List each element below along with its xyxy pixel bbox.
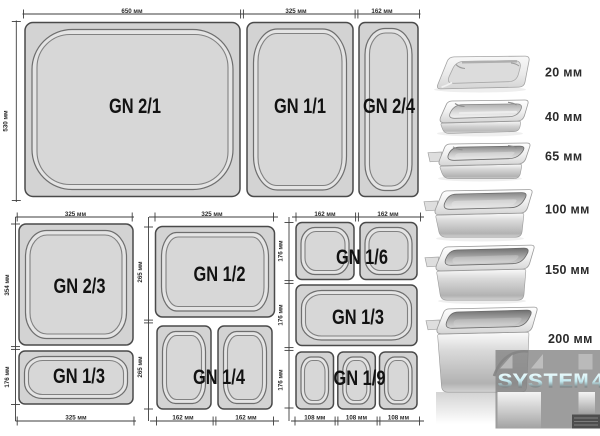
svg-text:40 мм: 40 мм	[545, 110, 582, 124]
svg-text:GN 2/3: GN 2/3	[54, 274, 106, 298]
svg-text:325 мм: 325 мм	[65, 415, 87, 422]
svg-text:GN 1/3: GN 1/3	[53, 364, 105, 388]
svg-text:GN 1/1: GN 1/1	[274, 94, 326, 118]
svg-text:GN 2/4: GN 2/4	[363, 94, 415, 118]
svg-text:GN 1/9: GN 1/9	[334, 366, 386, 390]
svg-text:200 мм: 200 мм	[548, 332, 593, 346]
svg-text:108 мм: 108 мм	[304, 415, 326, 422]
svg-text:176 мм: 176 мм	[278, 240, 285, 262]
svg-text:162 мм: 162 мм	[314, 211, 336, 218]
svg-text:GN 1/3: GN 1/3	[332, 305, 384, 329]
svg-text:650 мм: 650 мм	[121, 8, 143, 15]
svg-text:108 мм: 108 мм	[388, 415, 410, 422]
svg-text:SYSTEM: SYSTEM	[498, 372, 589, 395]
svg-text:354 мм: 354 мм	[4, 274, 11, 296]
svg-text:176 мм: 176 мм	[4, 366, 11, 388]
svg-text:162 мм: 162 мм	[235, 415, 257, 422]
svg-text:325 мм: 325 мм	[201, 211, 223, 218]
svg-text:530 мм: 530 мм	[3, 110, 10, 132]
svg-text:176 мм: 176 мм	[278, 304, 285, 326]
svg-text:325 мм: 325 мм	[65, 211, 87, 218]
svg-text:265 мм: 265 мм	[137, 261, 144, 283]
svg-text:65 мм: 65 мм	[545, 150, 582, 164]
svg-text:20 мм: 20 мм	[545, 66, 582, 80]
svg-text:265 мм: 265 мм	[137, 356, 144, 378]
svg-text:108 мм: 108 мм	[346, 415, 368, 422]
svg-text:GN 1/4: GN 1/4	[193, 365, 245, 389]
svg-text:GN 1/6: GN 1/6	[336, 245, 388, 269]
svg-text:4: 4	[592, 372, 600, 395]
svg-text:GN 1/2: GN 1/2	[194, 262, 246, 286]
svg-text:162 мм: 162 мм	[377, 211, 399, 218]
svg-text:162 мм: 162 мм	[371, 8, 393, 15]
svg-text:325 мм: 325 мм	[285, 8, 307, 15]
svg-text:100 мм: 100 мм	[545, 203, 590, 217]
svg-text:GN 2/1: GN 2/1	[109, 94, 161, 118]
svg-text:176 мм: 176 мм	[278, 369, 285, 391]
svg-text:162 мм: 162 мм	[172, 415, 194, 422]
svg-text:150 мм: 150 мм	[545, 263, 590, 277]
